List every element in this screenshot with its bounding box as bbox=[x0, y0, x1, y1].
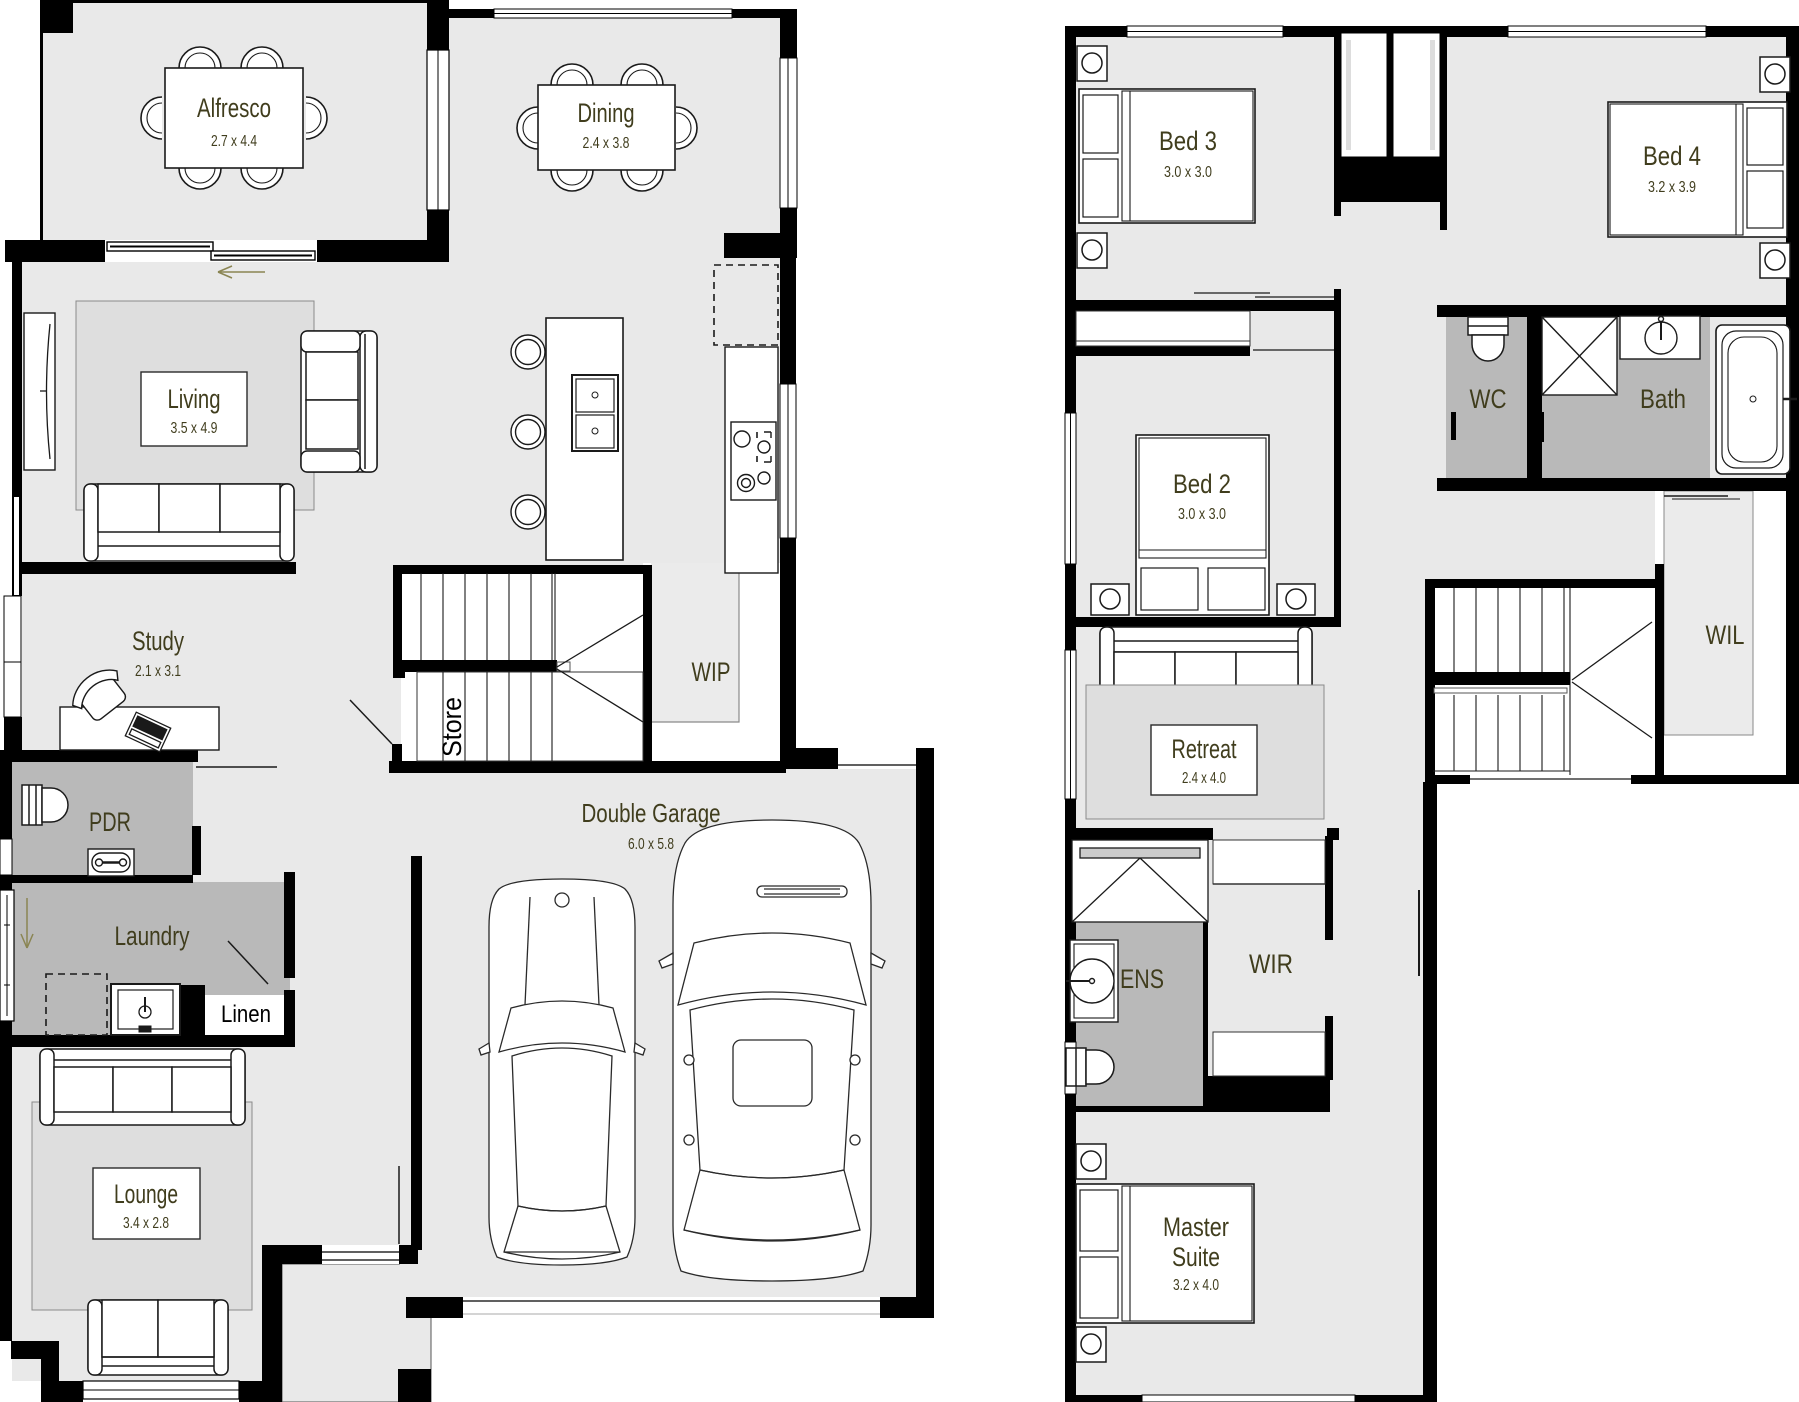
svg-text:Double Garage: Double Garage bbox=[582, 798, 721, 828]
svg-text:WIR: WIR bbox=[1249, 949, 1293, 979]
svg-text:WC: WC bbox=[1470, 384, 1507, 414]
svg-text:Lounge: Lounge bbox=[114, 1179, 178, 1209]
svg-text:Bed 3: Bed 3 bbox=[1159, 126, 1217, 156]
svg-text:Living: Living bbox=[168, 384, 221, 414]
svg-text:2.1 x 3.1: 2.1 x 3.1 bbox=[135, 663, 181, 680]
svg-text:Dining: Dining bbox=[578, 98, 635, 128]
svg-text:WIP: WIP bbox=[692, 657, 731, 687]
svg-text:3.5 x 4.9: 3.5 x 4.9 bbox=[171, 420, 218, 437]
svg-text:3.0 x 3.0: 3.0 x 3.0 bbox=[1178, 506, 1226, 523]
svg-text:3.4 x 2.8: 3.4 x 2.8 bbox=[123, 1215, 169, 1232]
svg-text:6.0 x 5.8: 6.0 x 5.8 bbox=[628, 836, 674, 853]
svg-text:Master: Master bbox=[1163, 1212, 1229, 1242]
svg-text:Bed 2: Bed 2 bbox=[1173, 469, 1231, 499]
svg-text:WIL: WIL bbox=[1706, 620, 1745, 650]
svg-text:Laundry: Laundry bbox=[115, 921, 190, 951]
svg-text:3.2 x 3.9: 3.2 x 3.9 bbox=[1648, 179, 1696, 196]
svg-text:Suite: Suite bbox=[1172, 1242, 1220, 1272]
svg-text:Bath: Bath bbox=[1640, 384, 1686, 414]
svg-text:Alfresco: Alfresco bbox=[197, 93, 271, 123]
svg-text:Study: Study bbox=[132, 626, 184, 656]
svg-text:PDR: PDR bbox=[89, 807, 131, 837]
svg-text:2.7 x 4.4: 2.7 x 4.4 bbox=[211, 133, 257, 150]
svg-text:Store: Store bbox=[437, 697, 467, 757]
svg-text:2.4 x 3.8: 2.4 x 3.8 bbox=[583, 135, 630, 152]
svg-text:3.2 x 4.0: 3.2 x 4.0 bbox=[1173, 1277, 1219, 1294]
svg-text:ENS: ENS bbox=[1120, 964, 1164, 994]
svg-text:Bed 4: Bed 4 bbox=[1643, 141, 1701, 171]
svg-text:3.0 x 3.0: 3.0 x 3.0 bbox=[1164, 164, 1212, 181]
svg-text:Retreat: Retreat bbox=[1172, 734, 1237, 764]
svg-text:Linen: Linen bbox=[221, 1001, 271, 1028]
svg-text:2.4 x 4.0: 2.4 x 4.0 bbox=[1182, 770, 1226, 787]
